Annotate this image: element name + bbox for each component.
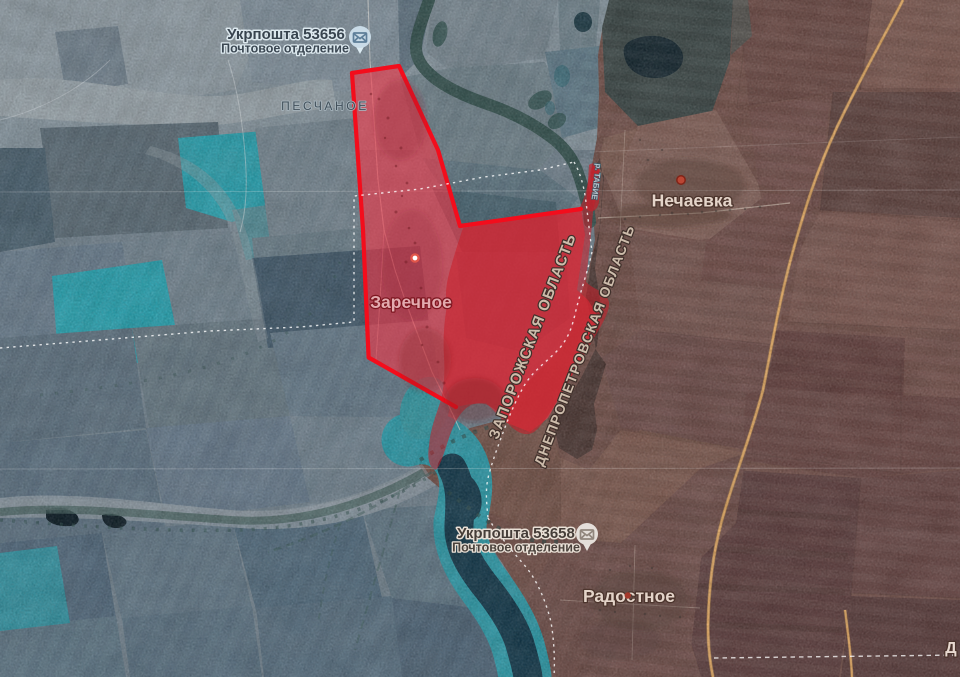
svg-text:Нечаевка: Нечаевка bbox=[652, 191, 733, 211]
svg-text:Д: Д bbox=[945, 640, 957, 657]
svg-text:Почтовое отделение: Почтовое отделение bbox=[452, 541, 580, 555]
svg-text:ПЕСЧАНОЕ: ПЕСЧАНОЕ bbox=[281, 99, 369, 113]
svg-text:Укрпошта 53656: Укрпошта 53656 bbox=[227, 26, 345, 43]
svg-text:Почтовое отделение: Почтовое отделение bbox=[221, 42, 349, 56]
svg-text:Заречное: Заречное bbox=[370, 292, 452, 312]
svg-text:Укрпошта 53658: Укрпошта 53658 bbox=[457, 525, 575, 542]
